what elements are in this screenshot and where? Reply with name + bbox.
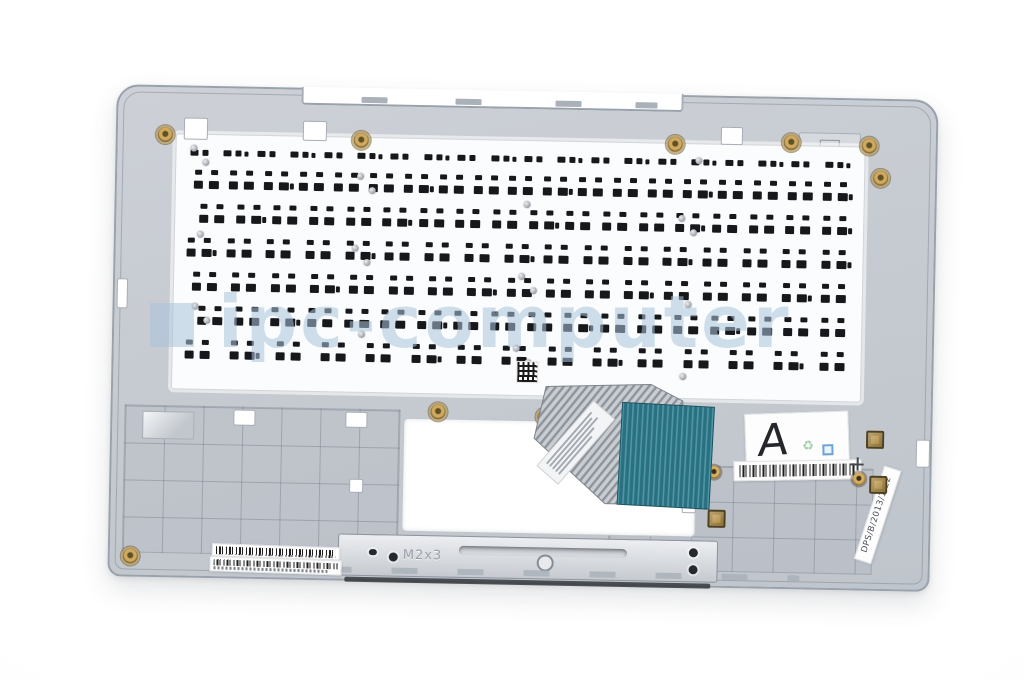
key-mark	[729, 361, 738, 369]
key-mark	[683, 190, 692, 198]
barcode-icon	[739, 463, 855, 477]
key-mark	[688, 326, 698, 334]
key-mark	[547, 357, 556, 365]
key-mark	[774, 362, 783, 370]
key-mark	[234, 317, 243, 325]
key-mark	[425, 253, 434, 261]
key-cutout	[453, 148, 486, 173]
key-mark	[703, 292, 712, 300]
key-cutout	[182, 337, 216, 371]
key-mark	[236, 150, 242, 156]
key-mark	[712, 225, 721, 233]
key-mark	[275, 352, 284, 360]
key-cutout	[343, 205, 377, 239]
key-mark	[479, 254, 489, 262]
key-mark	[585, 290, 594, 298]
key-cutout	[700, 245, 734, 279]
key-cutout	[622, 278, 656, 312]
key-mark	[823, 216, 830, 221]
key-mark	[336, 286, 340, 292]
key-cutout	[636, 346, 670, 380]
screw	[695, 157, 702, 164]
cable-connector-end	[617, 402, 714, 509]
key-mark	[428, 287, 437, 295]
key-cutout	[576, 175, 610, 209]
bracket-screw-hole	[689, 548, 698, 557]
key-mark	[311, 274, 318, 279]
key-mark	[471, 311, 478, 316]
key-mark	[759, 249, 766, 254]
key-cutout	[415, 308, 449, 342]
square-nut-icon	[869, 476, 887, 494]
key-mark	[743, 282, 750, 287]
key-mark	[601, 245, 608, 250]
key-mark	[262, 217, 266, 223]
key-mark	[565, 313, 572, 318]
key-mark	[490, 322, 499, 330]
key-mark	[200, 351, 210, 359]
key-cutout	[726, 348, 760, 382]
key-mark	[530, 256, 534, 262]
key-mark	[491, 155, 499, 161]
key-cutout	[343, 239, 377, 273]
key-mark	[246, 284, 256, 292]
key-cutout	[646, 176, 680, 210]
key-cutout	[819, 282, 853, 316]
key-mark	[406, 276, 413, 281]
key-cutout	[383, 239, 417, 273]
key-mark	[386, 241, 393, 246]
cutout-window	[349, 479, 363, 493]
key-mark	[685, 349, 692, 354]
key-mark	[664, 247, 671, 252]
key-mark	[783, 249, 790, 254]
key-mark	[272, 216, 281, 224]
key-mark	[650, 292, 654, 298]
key-mark	[839, 216, 846, 221]
key-cutout	[740, 246, 774, 280]
key-mark	[395, 321, 405, 329]
key-cutout	[620, 151, 653, 176]
key-mark	[503, 346, 510, 351]
key-mark	[519, 255, 529, 263]
key-cutout	[253, 144, 286, 169]
key-cutout	[268, 271, 302, 305]
key-mark	[768, 192, 778, 200]
key-mark	[251, 307, 258, 312]
key-cutout	[746, 212, 780, 246]
key-mark	[836, 295, 846, 303]
key-mark	[783, 283, 790, 288]
key-mark	[579, 177, 586, 182]
key-mark	[361, 218, 371, 226]
key-mark	[366, 354, 375, 362]
key-mark	[678, 258, 688, 266]
key-mark	[563, 279, 570, 284]
key-mark	[344, 320, 353, 328]
key-mark	[321, 353, 330, 361]
key-cutout	[820, 214, 854, 248]
key-cutout	[462, 241, 496, 275]
key-cutout	[744, 314, 778, 348]
bracket-size-label: M2x3	[403, 548, 443, 564]
key-cutout	[581, 243, 615, 277]
key-mark	[281, 171, 288, 176]
key-mark	[742, 293, 751, 301]
screw-boss-icon	[862, 138, 877, 153]
key-mark	[720, 248, 727, 253]
key-mark	[195, 170, 202, 175]
key-mark	[507, 221, 517, 229]
key-mark	[791, 351, 798, 356]
key-mark	[327, 274, 334, 279]
key-mark	[493, 209, 500, 214]
key-mark	[578, 188, 587, 196]
key-mark	[314, 183, 324, 191]
key-cutout	[621, 244, 655, 278]
key-mark	[779, 162, 783, 167]
cutout-window	[303, 121, 327, 141]
key-cutout	[541, 242, 575, 276]
key-mark	[591, 157, 599, 163]
key-mark	[849, 194, 853, 200]
key-mark	[529, 221, 538, 229]
key-mark	[558, 157, 566, 163]
key-mark	[847, 262, 851, 268]
key-mark	[229, 181, 238, 189]
key-mark	[419, 219, 428, 227]
screw	[352, 245, 359, 252]
key-mark	[567, 211, 574, 216]
key-mark	[457, 356, 466, 364]
key-mark	[799, 249, 806, 254]
key-cutout	[583, 277, 617, 311]
key-mark	[199, 215, 208, 223]
key-mark	[579, 158, 583, 163]
key-mark	[546, 289, 555, 297]
key-mark	[316, 172, 323, 177]
key-mark	[560, 177, 567, 182]
key-cutout	[303, 238, 337, 272]
key-mark	[673, 326, 682, 334]
key-mark	[299, 183, 308, 191]
key-mark	[324, 308, 331, 313]
key-mark	[312, 153, 316, 158]
key-mark	[276, 341, 283, 346]
key-mark	[709, 192, 713, 198]
key-mark	[503, 156, 509, 162]
key-mark	[502, 357, 511, 365]
key-mark	[432, 321, 442, 329]
key-mark	[466, 243, 473, 248]
key-cutout	[671, 313, 705, 347]
key-mark	[454, 322, 463, 330]
key-mark	[583, 256, 592, 264]
key-mark	[737, 160, 743, 166]
key-mark	[625, 280, 632, 285]
key-mark	[762, 328, 772, 336]
key-cutout	[772, 349, 806, 383]
key-mark	[212, 317, 222, 325]
key-mark	[264, 182, 273, 190]
key-cutout	[308, 272, 342, 306]
notch-tab	[361, 97, 387, 103]
key-mark	[548, 346, 555, 351]
key-mark	[403, 287, 413, 295]
key-mark	[624, 246, 631, 251]
screw	[513, 345, 520, 352]
key-mark	[201, 249, 211, 257]
key-mark	[235, 306, 242, 311]
key-mark	[623, 257, 632, 265]
key-cutout	[386, 273, 420, 307]
key-mark	[464, 254, 473, 262]
key-mark	[684, 179, 691, 184]
key-mark	[426, 242, 433, 247]
key-mark	[649, 178, 656, 183]
key-mark	[757, 293, 767, 301]
key-mark	[338, 342, 345, 347]
key-mark	[837, 352, 844, 357]
key-cutout	[270, 203, 304, 237]
key-cutout	[598, 311, 632, 345]
key-mark	[782, 260, 791, 268]
key-mark	[403, 154, 409, 160]
key-mark	[213, 250, 217, 256]
key-mark	[482, 243, 489, 248]
key-mark	[821, 318, 828, 323]
key-mark	[324, 217, 334, 225]
key-mark	[665, 179, 672, 184]
key-mark	[469, 322, 479, 330]
metal-shield-patch	[142, 411, 195, 440]
key-mark	[186, 340, 193, 345]
key-mark	[648, 189, 657, 197]
key-mark	[675, 315, 682, 320]
key-mark	[226, 249, 235, 257]
key-mark	[524, 156, 532, 162]
key-mark	[803, 215, 810, 220]
key-mark	[224, 150, 232, 156]
key-mark	[536, 156, 542, 162]
key-mark	[837, 162, 843, 168]
key-mark	[473, 209, 480, 214]
key-cutout	[184, 235, 218, 269]
key-mark	[200, 204, 207, 209]
key-mark	[665, 281, 672, 286]
key-mark	[272, 273, 279, 278]
key-mark	[586, 279, 593, 284]
key-cutout	[779, 247, 813, 281]
key-mark	[369, 153, 375, 159]
key-mark	[579, 324, 589, 332]
key-cutout	[228, 338, 262, 372]
key-cutout	[783, 213, 817, 247]
key-cutout	[286, 144, 319, 169]
key-mark	[188, 238, 195, 243]
key-mark	[564, 347, 571, 352]
key-mark	[700, 349, 707, 354]
key-mark	[614, 178, 621, 183]
key-mark	[747, 327, 756, 335]
key-mark	[512, 157, 516, 162]
key-mark	[725, 327, 735, 335]
key-mark	[492, 311, 499, 316]
key-mark	[265, 171, 272, 176]
key-mark	[749, 225, 758, 233]
key-cutout	[234, 202, 268, 236]
key-mark	[680, 247, 687, 252]
key-mark	[285, 284, 295, 292]
key-mark	[436, 154, 442, 160]
key-mark	[639, 348, 646, 353]
key-mark	[267, 239, 274, 244]
key-mark	[202, 150, 208, 156]
key-cutout	[541, 174, 575, 208]
key-mark	[836, 261, 846, 269]
key-mark	[789, 362, 799, 370]
key-mark	[412, 344, 419, 349]
key-mark	[310, 206, 317, 211]
key-mark	[509, 210, 516, 215]
key-cutout	[273, 339, 307, 373]
key-mark	[326, 206, 333, 211]
key-mark	[746, 350, 753, 355]
key-mark	[564, 324, 573, 332]
key-mark	[237, 204, 244, 209]
palmrest-body: M2x3 A ♻ DPS/B/2013/1/22	[107, 84, 938, 592]
key-mark	[385, 252, 394, 260]
key-mark	[456, 220, 465, 228]
key-mark	[595, 177, 602, 182]
key-mark	[733, 191, 743, 199]
key-mark	[336, 152, 342, 158]
key-mark	[300, 172, 307, 177]
key-mark	[216, 204, 223, 209]
key-mark	[504, 255, 513, 263]
key-mark	[764, 226, 774, 234]
cutout-window	[233, 409, 255, 425]
key-mark	[420, 208, 427, 213]
key-mark	[231, 340, 238, 345]
key-mark	[509, 176, 516, 181]
key-cutout	[821, 155, 854, 180]
key-mark	[508, 278, 515, 283]
key-mark	[602, 280, 609, 285]
square-nut-icon	[866, 431, 884, 449]
key-mark	[303, 152, 309, 158]
key-mark	[245, 152, 249, 157]
screw-boss-icon	[123, 548, 138, 563]
key-mark	[266, 250, 275, 258]
key-mark	[384, 207, 391, 212]
key-mark	[797, 260, 807, 268]
bracket-hole	[369, 549, 377, 555]
key-cutout	[740, 280, 774, 314]
barcode-sticker	[209, 556, 341, 575]
key-mark	[788, 192, 797, 200]
key-mark	[493, 289, 497, 295]
key-mark	[362, 241, 369, 246]
key-mark	[675, 224, 684, 232]
key-mark	[471, 220, 481, 228]
key-cutout	[487, 148, 520, 173]
key-mark	[383, 184, 393, 192]
key-mark	[789, 181, 796, 186]
key-mark	[796, 294, 806, 302]
key-mark	[346, 218, 355, 226]
key-mark	[593, 188, 603, 196]
key-mark	[436, 208, 443, 213]
key-mark	[703, 159, 709, 165]
key-cutout	[224, 236, 258, 270]
key-cutout	[787, 154, 820, 179]
key-cutout	[710, 212, 744, 246]
alignment-cross-icon	[851, 457, 864, 470]
key-mark	[281, 250, 291, 258]
key-mark	[525, 176, 532, 181]
key-mark	[840, 182, 847, 187]
key-mark	[691, 315, 698, 320]
key-mark	[624, 291, 633, 299]
key-mark	[391, 153, 399, 159]
key-mark	[505, 323, 515, 331]
key-mark	[689, 259, 693, 265]
key-mark	[209, 181, 219, 189]
screw	[191, 303, 198, 310]
key-cutout	[454, 343, 488, 377]
key-mark	[388, 286, 397, 294]
key-mark	[347, 207, 354, 212]
key-mark	[371, 253, 375, 259]
key-mark	[820, 329, 829, 337]
key-mark	[418, 310, 425, 315]
key-mark	[681, 281, 688, 286]
key-mark	[628, 189, 638, 197]
key-mark	[711, 316, 718, 321]
key-mark	[757, 259, 767, 267]
key-mark	[345, 252, 354, 260]
key-mark	[846, 163, 850, 168]
key-mark	[231, 283, 240, 291]
key-mark	[638, 314, 645, 319]
key-cutout	[754, 153, 787, 178]
top-edge-notch	[301, 87, 683, 112]
key-mark	[523, 187, 533, 195]
key-mark	[617, 314, 624, 319]
key-mark	[555, 223, 559, 229]
key-cutout	[465, 275, 499, 309]
key-mark	[470, 155, 476, 161]
key-mark	[798, 328, 808, 336]
key-cutout	[554, 150, 587, 175]
key-mark	[821, 295, 830, 303]
key-mark	[249, 318, 259, 326]
key-mark	[543, 187, 552, 195]
key-mark	[443, 322, 447, 328]
key-mark	[468, 277, 475, 282]
key-mark	[363, 207, 370, 212]
key-mark	[544, 221, 554, 229]
key-mark	[655, 349, 662, 354]
key-mark	[783, 328, 792, 336]
key-mark	[725, 160, 733, 166]
key-mark	[544, 176, 551, 181]
key-mark	[775, 351, 782, 356]
key-mark	[335, 172, 342, 177]
key-mark	[822, 227, 831, 235]
key-cutout	[781, 315, 815, 349]
